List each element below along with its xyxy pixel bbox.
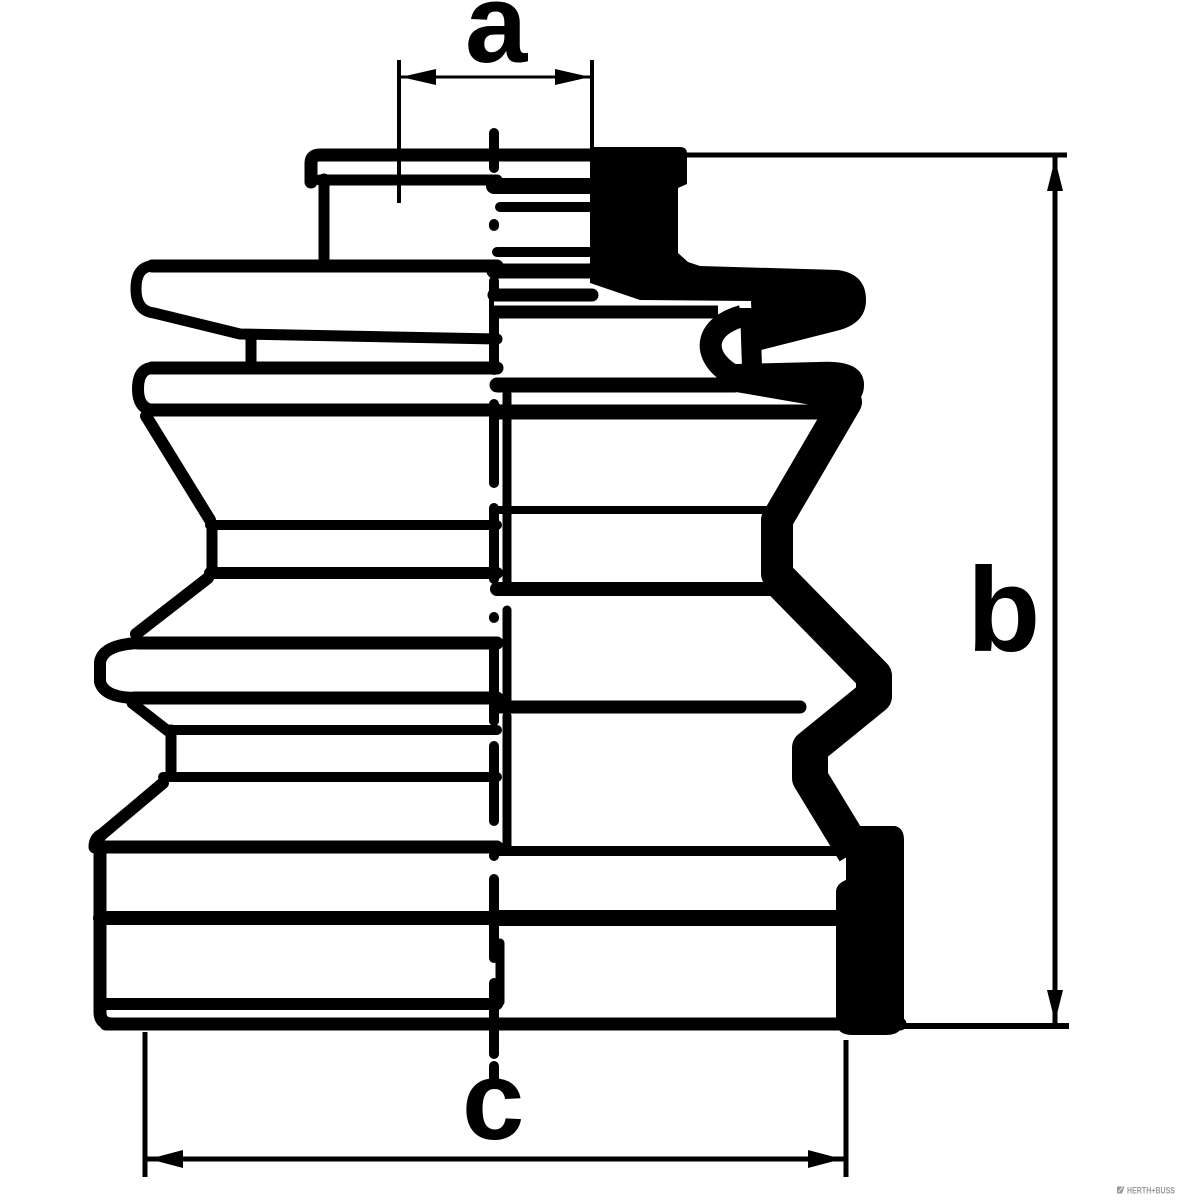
svg-text:a: a — [465, 0, 528, 86]
svg-text:b: b — [967, 543, 1040, 677]
svg-text:c: c — [462, 1038, 524, 1163]
svg-text:HERTH+BUSS: HERTH+BUSS — [1127, 1186, 1175, 1196]
